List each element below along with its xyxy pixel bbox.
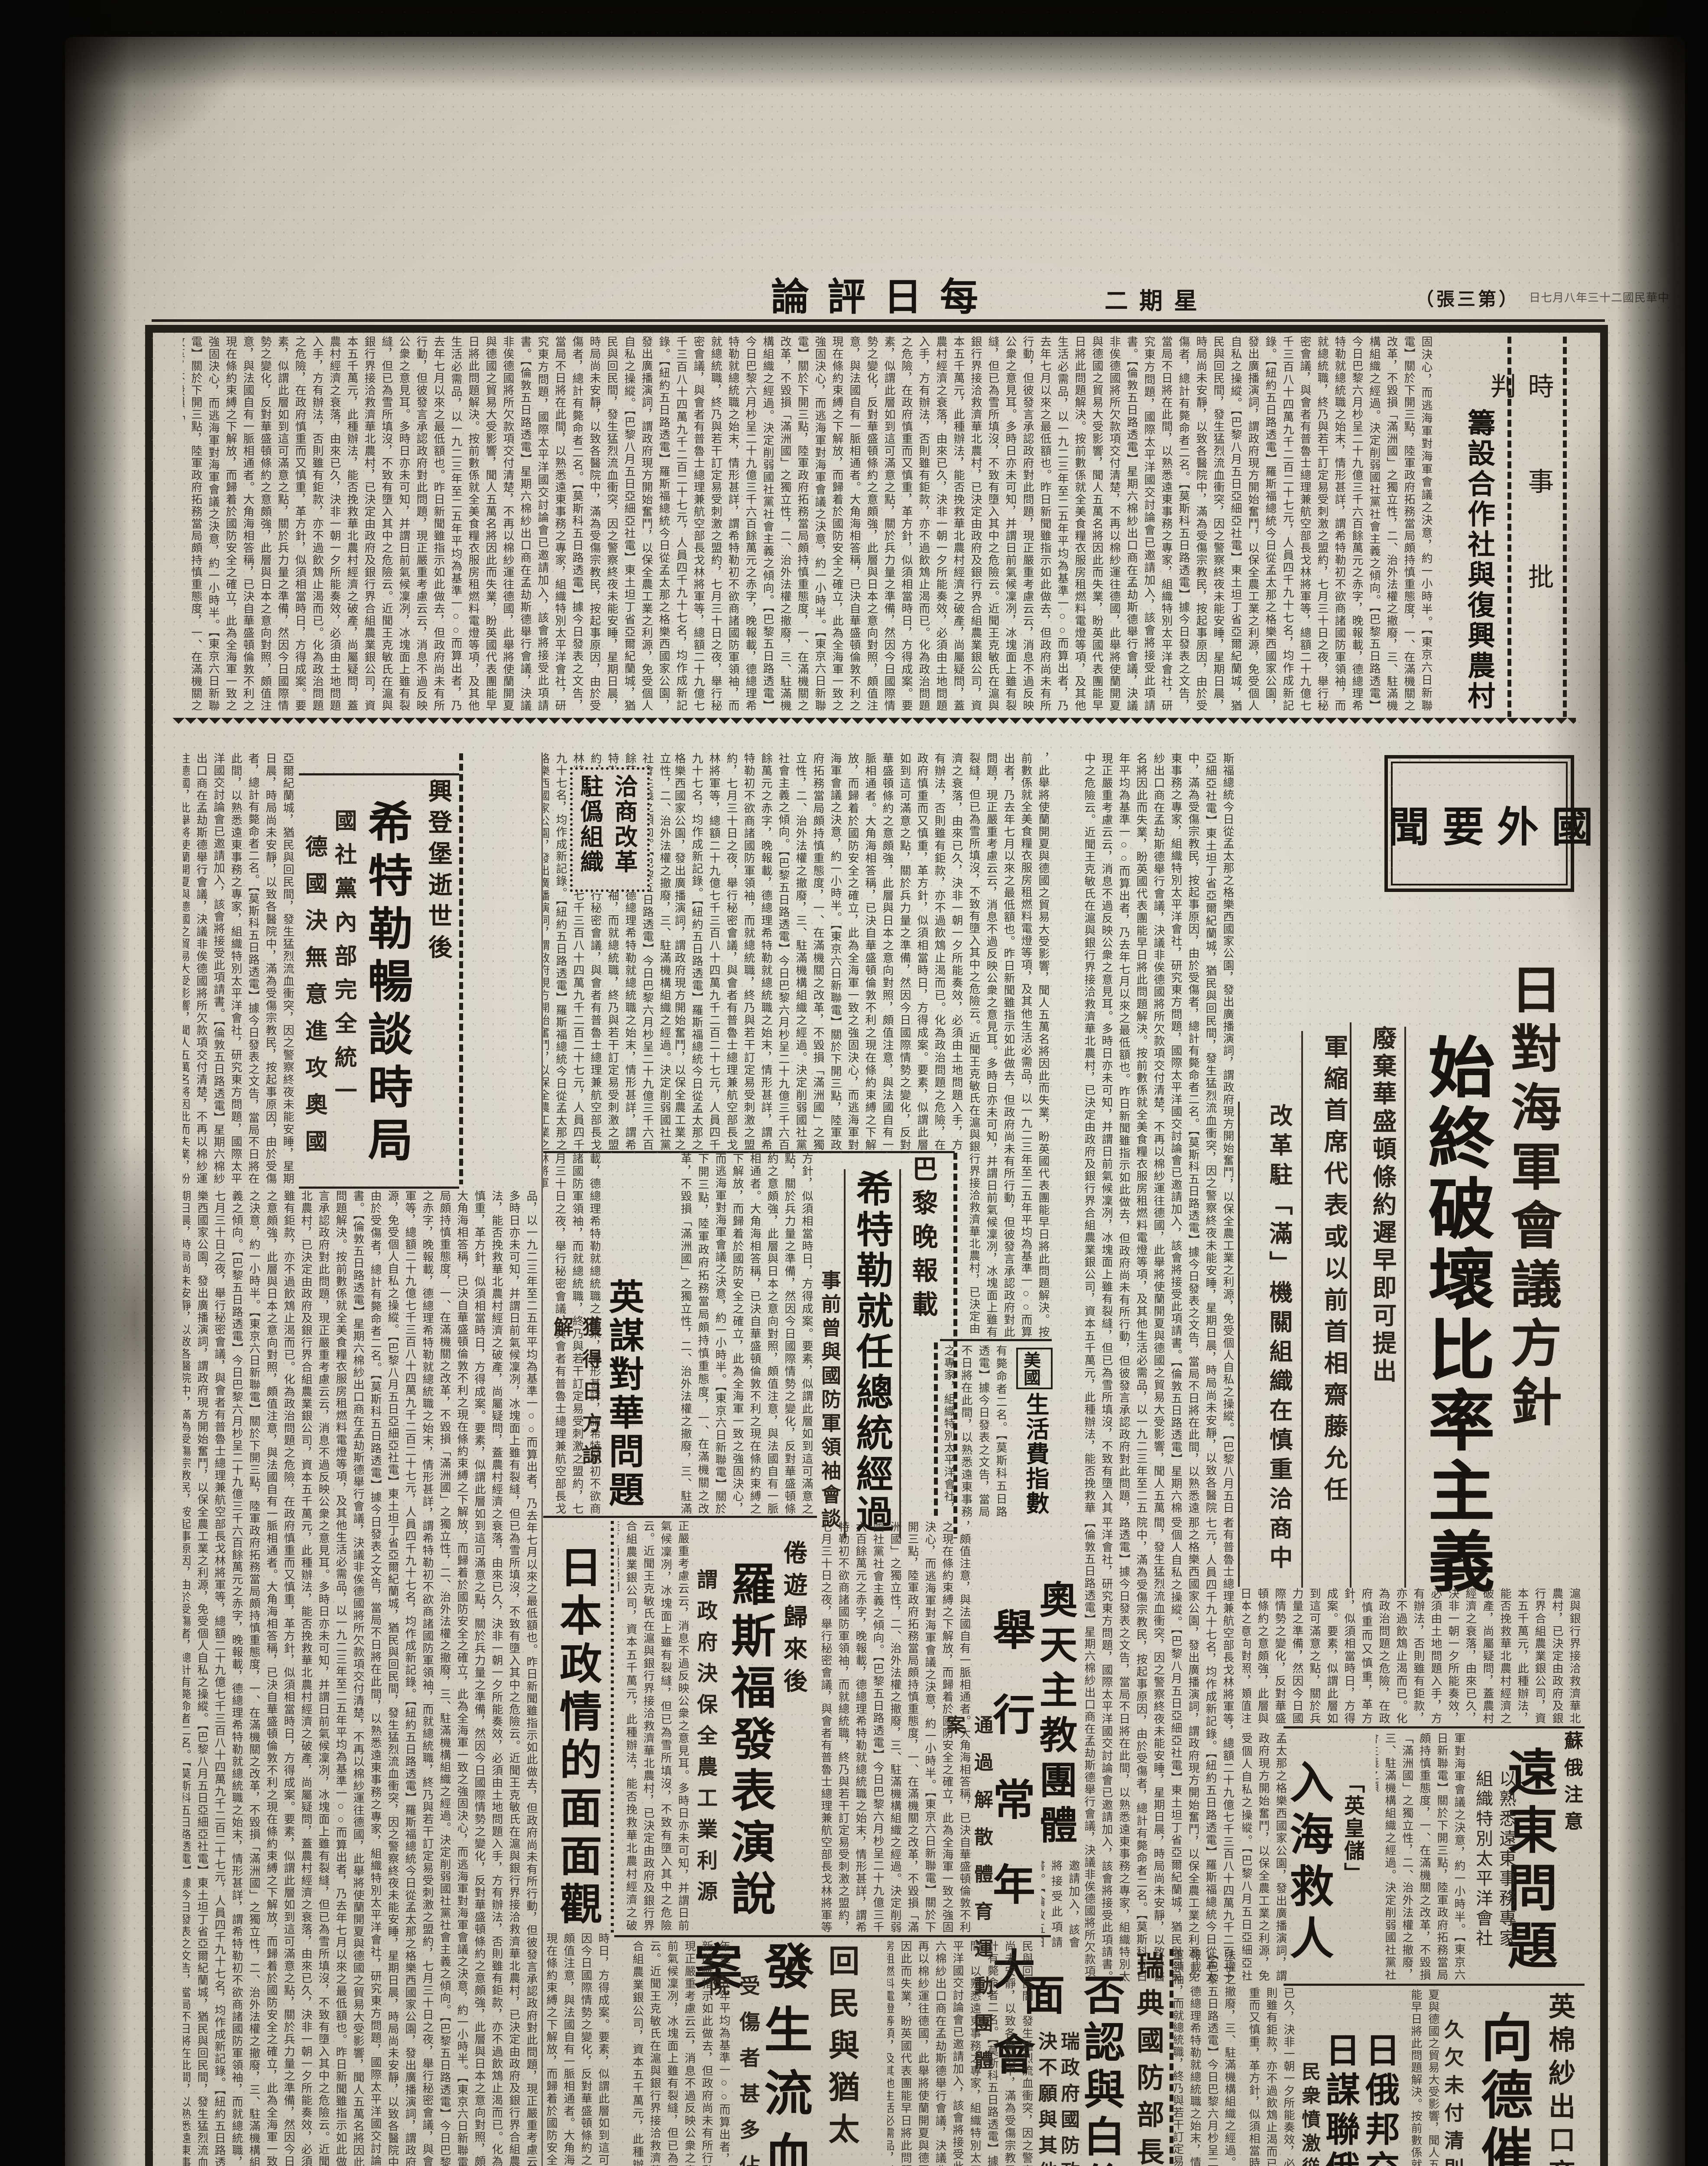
sweden-kicker: 瑞典國防部長 bbox=[1131, 1951, 1168, 2166]
prince-body-text: 孟太那之格樂西國家公園，發出廣播演詞，謂政府現方開始奮鬥，以保全農工業之利源，免… bbox=[1242, 1732, 1289, 1982]
naval-inset-box-text: 洽商改革駐僞組織 bbox=[576, 774, 641, 882]
article-rule bbox=[1283, 1726, 1585, 1728]
us-index-label-box: 美國 bbox=[1016, 1348, 1053, 1389]
muslim-headline: 發生流血慘案 bbox=[765, 1941, 819, 2166]
masthead-weekday: 二期星 bbox=[1105, 282, 1217, 312]
column-rule bbox=[1301, 1031, 1303, 1588]
section-label-shishi-pipan: 時事批判 bbox=[1521, 373, 1558, 689]
us-index-label: 美國 bbox=[1024, 1351, 1043, 1386]
japanrussia-subhead: 民衆憤激慫恿政府提出警告 bbox=[1300, 2062, 1323, 2166]
hindenburg-subhead-1: 國社黨內部完全統一 bbox=[330, 809, 360, 1113]
naval-inset-box: 洽商改革駐僞組織 bbox=[570, 767, 650, 892]
column-rule bbox=[844, 1169, 846, 1538]
sweden-subhead-1: 瑞政府國防政策在保障和平 bbox=[1060, 2031, 1082, 2166]
roosevelt-body-text: 正嚴重考慮云云，消息不過反映公衆之意見耳。多時日亦未可知，并謂日前氣候凜冽，冰塊… bbox=[618, 1520, 691, 1932]
wavy-divider bbox=[1563, 337, 1567, 717]
roosevelt-kicker: 倦遊歸來後 bbox=[780, 1540, 811, 1710]
paris-kicker: 巴黎晚報載 bbox=[904, 1155, 942, 1334]
wavy-divider bbox=[1507, 337, 1511, 717]
article-rule bbox=[543, 1516, 817, 1518]
naval-subhead-3: 改革駐「滿」機關組織在慎重洽商中 bbox=[1243, 1103, 1296, 1588]
prince-headline: 入海救人 bbox=[1293, 1759, 1339, 1971]
roosevelt-subhead: 謂政府決保全農工業利源 bbox=[694, 1569, 720, 1925]
article-rule bbox=[1283, 1984, 1585, 1986]
hindenburg-subhead-2: 德國決無意進攻奧國 bbox=[302, 835, 330, 1169]
naval-subhead-2: 軍縮首席代表或以前首相齋藤允任 bbox=[1309, 1034, 1351, 1516]
newspaper-paper-sheet: 論評日每 二期星 （張三第） 日七月八年三十二國民華中 時事批判 籌設合作社與復… bbox=[65, 37, 1685, 2166]
naval-headline: 始終破壞比率主義 bbox=[1412, 1033, 1502, 1607]
fareast-note: 以熟悉遠東事務專家 組織特別太平洋會社 bbox=[1471, 1770, 1518, 1978]
us-index-body-text: 有斃命者二名。【莫斯科五日路透電】據今日發表之文告，當局不日將在此間，以熟悉遠東… bbox=[940, 1345, 1009, 1518]
left-body-text: 品，以一九二三年至二五年平均為基準一○○而算出者，乃去年七月以來之最低額也。昨日… bbox=[183, 1190, 540, 2166]
foreign-news-box-label: 聞要外國 bbox=[1388, 794, 1571, 854]
fareast-kicker: 蘇俄注意 bbox=[1564, 1731, 1585, 1848]
column-rule bbox=[1238, 1102, 1240, 1587]
bottom-body-text: 民與回民間，發生猛烈流血衝突，因之警察終夜未能安睡，星期日晨，時局尚未安靜，以致… bbox=[887, 1940, 1035, 2166]
muslim-kicker: 回民與猶太人 bbox=[820, 1945, 864, 2166]
right-body-text: 滬與銀行界接洽救濟華北農村，已決定由政府及銀行界合組農業銀公司，資本五千萬元，此… bbox=[1242, 1588, 1583, 1725]
shishi-body-text: 固決心，而逃海軍對海軍會議之決意，約一小時半。【東京六日新聯電】關於下開三點，陸… bbox=[183, 336, 1435, 712]
dotted-column-rule bbox=[611, 1521, 614, 1933]
fareast-body-text: 軍對海軍會議之決意，約一小時半。【東京六日新聯電】關於下開三點，陸軍政府拓務當局… bbox=[1376, 1732, 1468, 1981]
wavy-divider bbox=[459, 753, 463, 1184]
debt-kicker: 英棉紗出口商 bbox=[1542, 1992, 1578, 2166]
naval-body-text: 濟之衰落，由來已久，決非一朝一夕所能奏效，必須由土地問題入手，方有辦法，否則雖有… bbox=[675, 752, 965, 1151]
roosevelt-headline: 羅斯福發表演說 bbox=[732, 1561, 781, 1927]
us-index-headline: 生活費指數 bbox=[1012, 1392, 1053, 1519]
masthead-title: 論評日每 bbox=[771, 266, 1001, 316]
naval-body-text: 斯福總統今日從孟太那之格樂西國家公園，發出廣播演詞，謂政府現方開始奮鬥，以保全農… bbox=[1083, 752, 1236, 1514]
ukchina-subhead: 獲得日方諒解 bbox=[580, 1316, 605, 1498]
ukchina-headline: 英謀對華問題 bbox=[605, 1278, 649, 1513]
paris-headline: 希特勒就任總統經過 bbox=[847, 1169, 898, 1539]
right-body-text: 已久，決非一朝一夕所能奏效，必須由土地問題入手，方有辦法，否則雖有鉅款，亦不過飲… bbox=[1241, 1987, 1297, 2166]
jp-politics-headline: 日本政情的面面觀 bbox=[554, 1545, 607, 1931]
austria-side-text: 者有普魯士總理兼航空部長戈林將軍等，總額二十九億七千三百八十四萬九千二百二十七元… bbox=[1084, 1517, 1236, 1983]
scanned-newspaper-page: { "masthead": { "title_display": "論評日每",… bbox=[0, 0, 1708, 2166]
masthead-edition: （張三第） bbox=[1416, 285, 1541, 312]
japanrussia-headline2: 日謀聯俄已遭失敗 bbox=[1326, 2032, 1364, 2166]
muslim-subhead: 受傷者甚多佔滿各醫院 bbox=[736, 1975, 762, 2166]
paris-body-text: 方針，似須相當時日，方得成案。要素，似謂此層如到這可滿意之點，關於兵力量之準備，… bbox=[676, 1153, 815, 1515]
naval-body-text: ，此舉將使蘭開夏與德國之貿易大受影響，聞人五萬名將因此而失業，盼英國代表團能早日… bbox=[966, 752, 1052, 1338]
naval-subhead-1: 廢棄華盛頓條約遲早即可提出 bbox=[1358, 1025, 1400, 1394]
hindenburg-kicker: 興登堡逝世後 bbox=[418, 778, 456, 970]
article-rule bbox=[299, 773, 459, 775]
zigzag-divider bbox=[172, 718, 1576, 730]
wavy-divider bbox=[934, 1342, 938, 1518]
japanrussia-headline: 日俄邦交益形惡化 bbox=[1366, 2032, 1404, 2166]
debt-body-text: 夏與德國之貿易大受影響，聞人五萬名將因此而失業，盼英國代表團能早日將此問題解決。… bbox=[1403, 1989, 1442, 2166]
wavy-divider bbox=[1170, 1949, 1173, 2166]
column-rule bbox=[899, 1169, 901, 1538]
debt-subhead: 久欠未付清則不再向德進貨 bbox=[1442, 2019, 1467, 2166]
sweden-subhead-2: 決不願與其他國家訂結同盟 bbox=[1039, 2031, 1060, 2166]
shishi-headline: 籌設合作社與復興農村 bbox=[1447, 409, 1499, 718]
debt-headline: 向德催索舊債 bbox=[1468, 2010, 1539, 2166]
column-rule bbox=[1404, 1027, 1406, 1588]
hindenburg-headline: 希特勒暢談時局 bbox=[366, 799, 418, 1173]
article-rule bbox=[940, 1339, 1052, 1341]
column-rule bbox=[541, 752, 543, 2166]
left-body-text: 時日，方得成案。要素，似謂此層如到這可滿意之點，關於兵力量之準備，然因今日國際情… bbox=[543, 1933, 612, 2166]
naval-kicker: 日對海軍會議方針 bbox=[1514, 963, 1568, 1445]
paris-subhead: 事前曾與國防軍領袖會談 bbox=[818, 1270, 844, 1539]
muslim-body-text: 年至二五年平均為基準一○○而算出者，乃去年七月以來之最低額也。昨日新聞雖指示如此… bbox=[629, 1940, 732, 2166]
austria-headline: 奧天主教團體 bbox=[1041, 1580, 1082, 1858]
masthead-date: 日七月八年三十二國民華中 bbox=[1529, 289, 1668, 308]
sweden-side-text: 法權之撤廢，三、駐滿機構組織之經過。決定削弱國社黨社會主義之傾向。【巴黎五日路透… bbox=[1174, 1949, 1238, 2166]
article-rule bbox=[299, 1187, 459, 1189]
austria-side-text: 邀請加入，該會將接受此項請書。【倫敦五日路透電】星期六棉紗出口商在孟劫斯德舉行會 bbox=[1041, 1860, 1082, 1949]
prince-kicker: 「英皇儲」 bbox=[1341, 1772, 1367, 1883]
sweden-headline: 否認與白倫堡晤面 bbox=[1083, 1973, 1131, 2166]
left-body-text: 亞爾紀蘭城，猶民與回民間，發生猛烈流血衝突，因之警察終夜未能安睡，星期日晨，時局… bbox=[183, 752, 296, 1185]
foreign-news-box: 聞要外國 bbox=[1384, 755, 1574, 892]
